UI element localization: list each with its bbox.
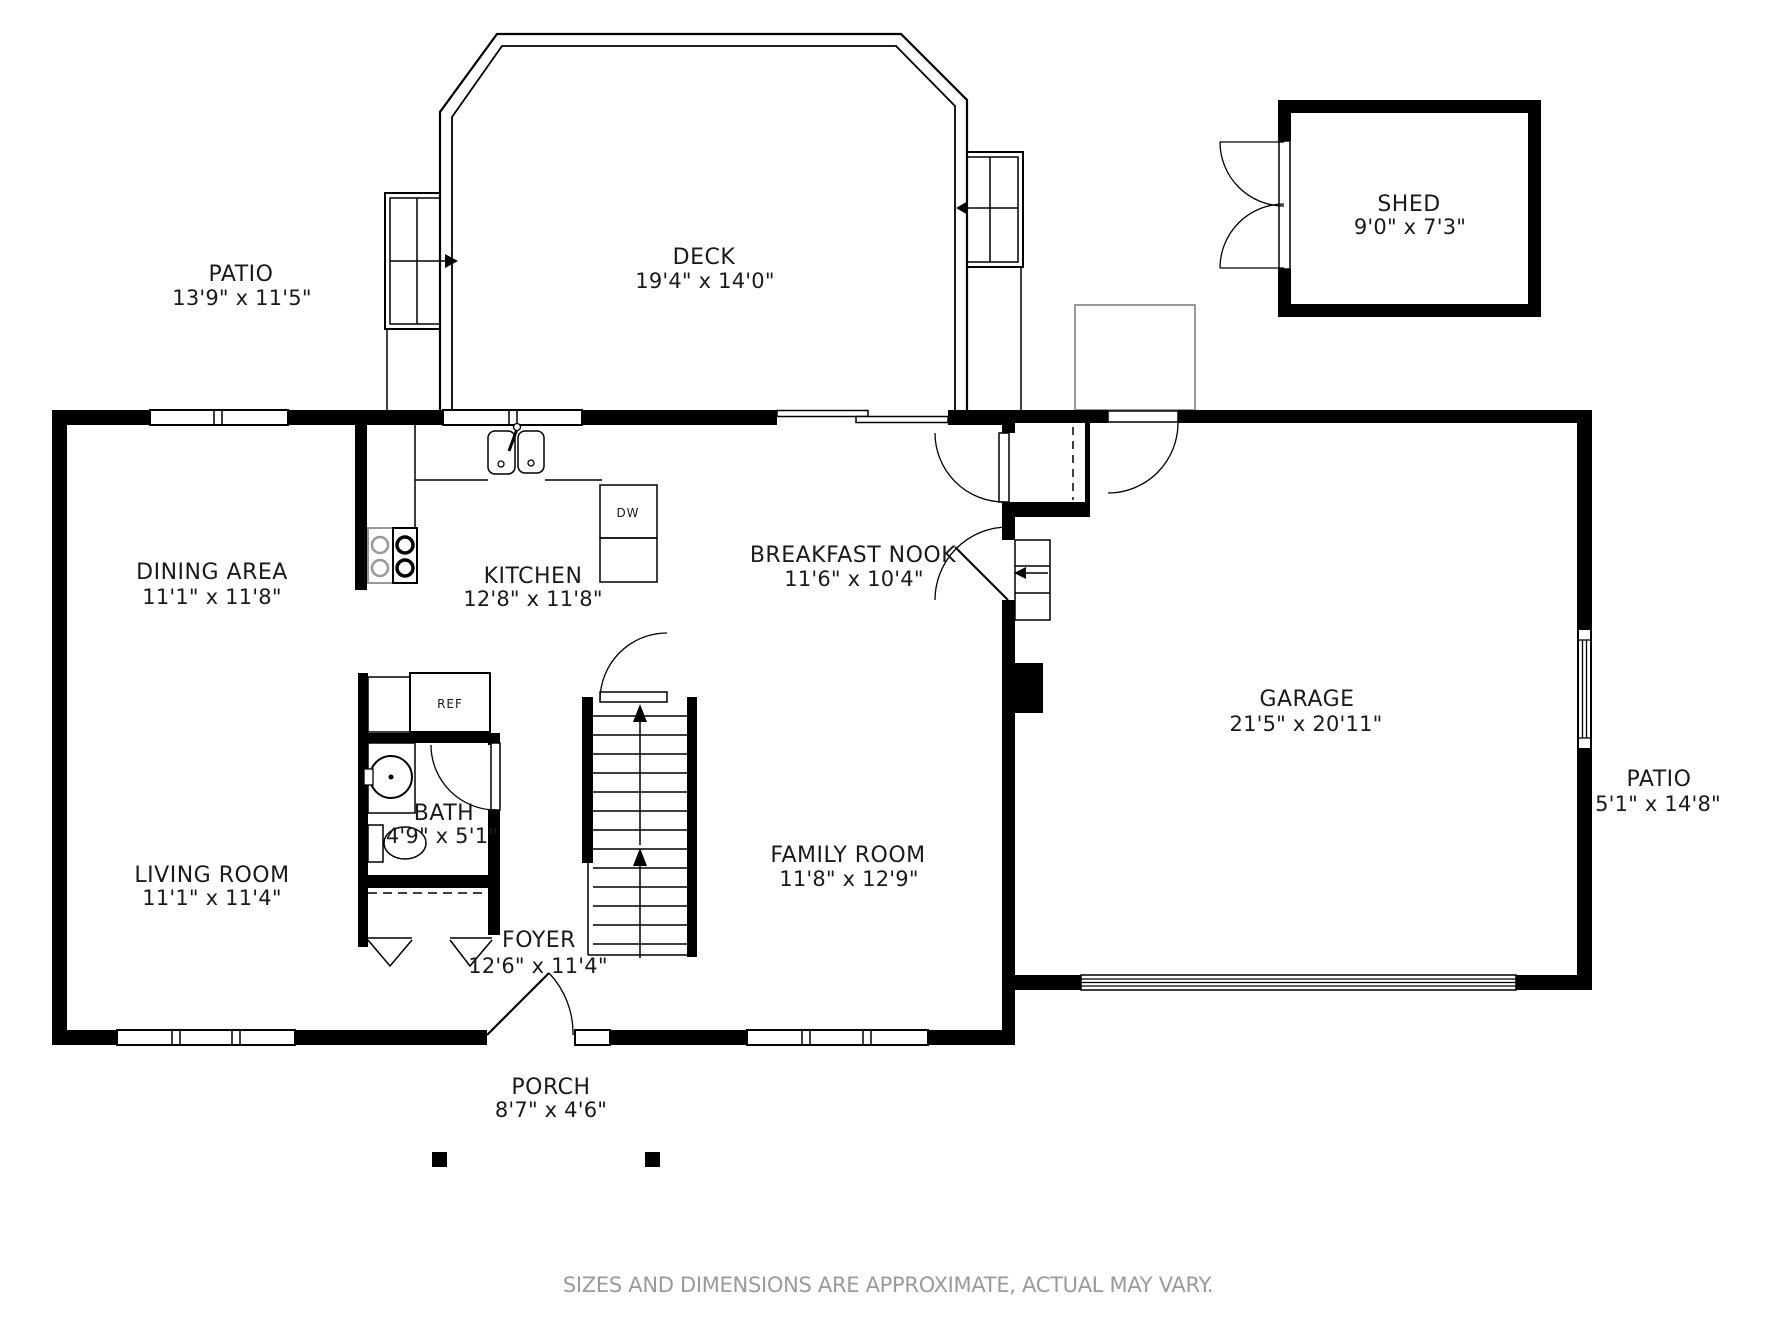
svg-text:12'8" x 11'8": 12'8" x 11'8" bbox=[463, 587, 602, 611]
deck-structure bbox=[385, 34, 1023, 410]
room-label-nook: BREAKFAST NOOK 11'6" x 10'4" bbox=[750, 543, 956, 591]
room-label-garage: GARAGE 21'5" x 20'11" bbox=[1230, 687, 1383, 736]
svg-text:LIVING ROOM: LIVING ROOM bbox=[134, 863, 289, 888]
room-label-patio-right: PATIO 5'1" x 14'8" bbox=[1595, 767, 1721, 816]
room-label-family: FAMILY ROOM 11'8" x 12'9" bbox=[770, 843, 925, 891]
living-window-icon bbox=[117, 1030, 295, 1045]
stair-up-arrows bbox=[633, 704, 647, 958]
svg-text:11'6" x 10'4": 11'6" x 10'4" bbox=[784, 567, 923, 591]
room-label-kitchen: KITCHEN 12'8" x 11'8" bbox=[463, 564, 602, 611]
svg-text:BREAKFAST NOOK: BREAKFAST NOOK bbox=[750, 543, 956, 568]
svg-text:SHED: SHED bbox=[1377, 192, 1440, 217]
room-label-patio-top: PATIO 13'9" x 11'5" bbox=[172, 262, 311, 310]
kitchen-window-icon bbox=[443, 410, 582, 425]
floor-plan-page: REF DW PATIO 13'9" x 11'5" DECK 19'4" bbox=[0, 0, 1777, 1333]
svg-text:11'8" x 12'9": 11'8" x 12'9" bbox=[779, 867, 918, 891]
front-door-sidelite-icon bbox=[575, 1030, 610, 1045]
family-window-icon bbox=[747, 1030, 928, 1045]
chimney-block bbox=[1015, 663, 1043, 713]
svg-text:21'5" x 20'11": 21'5" x 20'11" bbox=[1230, 712, 1383, 736]
svg-text:11'1" x 11'4": 11'1" x 11'4" bbox=[142, 886, 281, 910]
svg-text:FOYER: FOYER bbox=[502, 928, 576, 953]
svg-text:PATIO: PATIO bbox=[1627, 767, 1692, 792]
svg-text:19'4" x 14'0": 19'4" x 14'0" bbox=[635, 269, 774, 293]
svg-text:KITCHEN: KITCHEN bbox=[484, 564, 583, 589]
shed-double-door-icon bbox=[1220, 141, 1290, 269]
svg-text:PORCH: PORCH bbox=[511, 1075, 590, 1100]
room-label-shed: SHED 9'0" x 7'3" bbox=[1354, 192, 1466, 239]
room-label-foyer: FOYER 12'6" x 11'4" bbox=[468, 928, 607, 978]
dining-window-icon bbox=[150, 410, 288, 425]
svg-text:11'1" x 11'8": 11'1" x 11'8" bbox=[142, 585, 281, 609]
svg-text:DECK: DECK bbox=[673, 245, 736, 270]
svg-text:PATIO: PATIO bbox=[209, 262, 274, 287]
garage-steps-icon bbox=[1014, 540, 1050, 620]
garage-stoop-outline bbox=[1075, 305, 1195, 410]
svg-text:8'7" x 4'6": 8'7" x 4'6" bbox=[495, 1098, 607, 1122]
svg-text:DINING AREA: DINING AREA bbox=[136, 560, 288, 585]
porch-post-right bbox=[645, 1152, 660, 1167]
bath-door-icon bbox=[431, 743, 500, 810]
svg-text:GARAGE: GARAGE bbox=[1259, 687, 1354, 712]
basement-stair-door-icon bbox=[600, 633, 667, 702]
refrigerator-label: REF bbox=[437, 697, 463, 711]
nook-closet-door-icon bbox=[935, 433, 1009, 502]
cooktop-icon bbox=[368, 528, 417, 583]
room-label-living: LIVING ROOM 11'1" x 11'4" bbox=[134, 863, 289, 910]
garage-side-door-icon bbox=[1108, 411, 1178, 493]
dishwasher-label: DW bbox=[616, 506, 639, 520]
deck-stairs-left-icon bbox=[385, 193, 458, 410]
svg-text:9'0" x 7'3": 9'0" x 7'3" bbox=[1354, 215, 1466, 239]
svg-text:FAMILY ROOM: FAMILY ROOM bbox=[770, 843, 925, 868]
garage-side-window-icon bbox=[1578, 629, 1591, 749]
svg-text:5'1" x 14'8": 5'1" x 14'8" bbox=[1595, 792, 1721, 816]
svg-text:12'6" x 11'4": 12'6" x 11'4" bbox=[468, 954, 607, 978]
front-door-icon bbox=[487, 973, 573, 1035]
room-label-porch: PORCH 8'7" x 4'6" bbox=[495, 1075, 607, 1122]
porch-posts bbox=[432, 1152, 660, 1167]
staircase-icon bbox=[588, 704, 687, 958]
porch-post-left bbox=[432, 1152, 447, 1167]
sliding-door-icon bbox=[777, 411, 948, 423]
svg-text:BATH: BATH bbox=[414, 801, 474, 826]
disclaimer-text: SIZES AND DIMENSIONS ARE APPROXIMATE, AC… bbox=[563, 1273, 1213, 1297]
svg-text:13'9" x 11'5": 13'9" x 11'5" bbox=[172, 286, 311, 310]
room-label-deck: DECK 19'4" x 14'0" bbox=[635, 245, 774, 293]
floor-plan-svg: REF DW PATIO 13'9" x 11'5" DECK 19'4" bbox=[0, 0, 1777, 1333]
garage-door-icon bbox=[1081, 975, 1516, 990]
svg-text:4'9" x 5'1": 4'9" x 5'1" bbox=[386, 824, 498, 848]
refrigerator-icon: REF bbox=[368, 673, 490, 732]
kitchen-sink-icon bbox=[488, 424, 544, 475]
room-label-dining: DINING AREA 11'1" x 11'8" bbox=[136, 560, 288, 609]
